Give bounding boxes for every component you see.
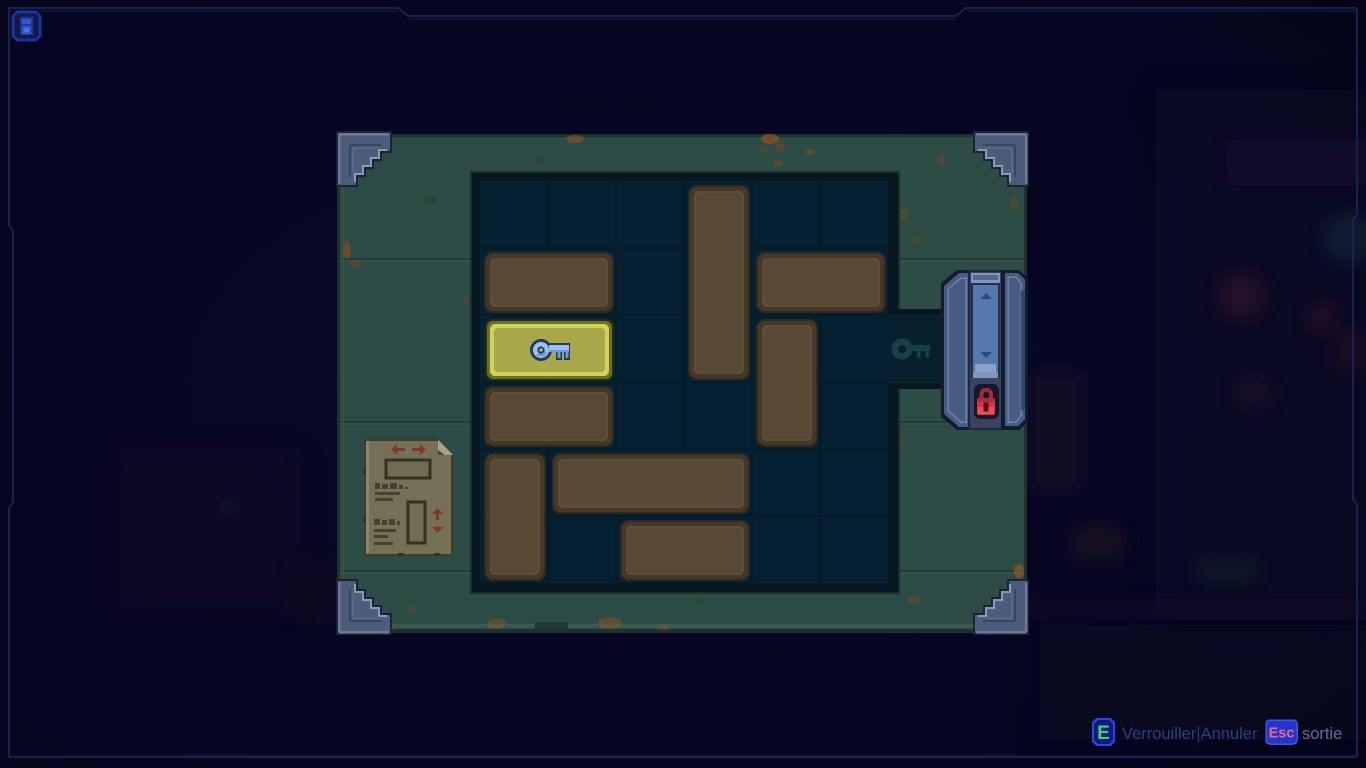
svg-text:sortie: sortie xyxy=(1302,725,1342,743)
svg-text:Verrouiller|Annuler: Verrouiller|Annuler xyxy=(1122,725,1258,743)
svg-text:E: E xyxy=(1097,723,1110,744)
svg-text:Esc: Esc xyxy=(1269,726,1295,742)
